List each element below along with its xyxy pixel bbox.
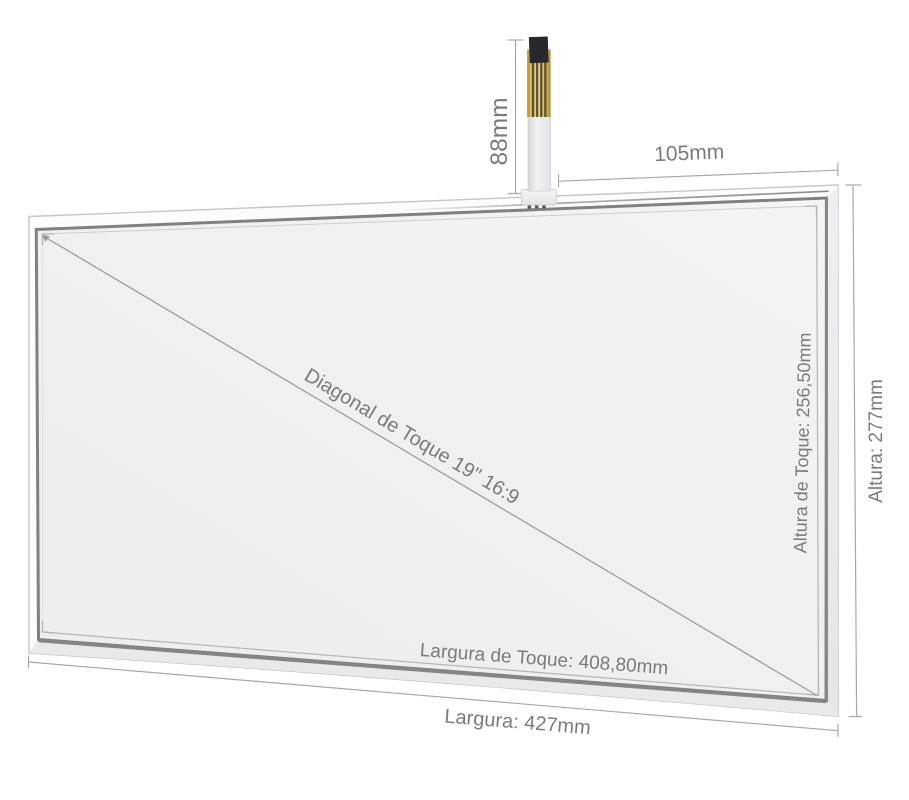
- svg-text:Altura: 277mm: Altura: 277mm: [866, 379, 887, 503]
- svg-text:88mm: 88mm: [486, 97, 513, 165]
- svg-text:105mm: 105mm: [654, 140, 725, 166]
